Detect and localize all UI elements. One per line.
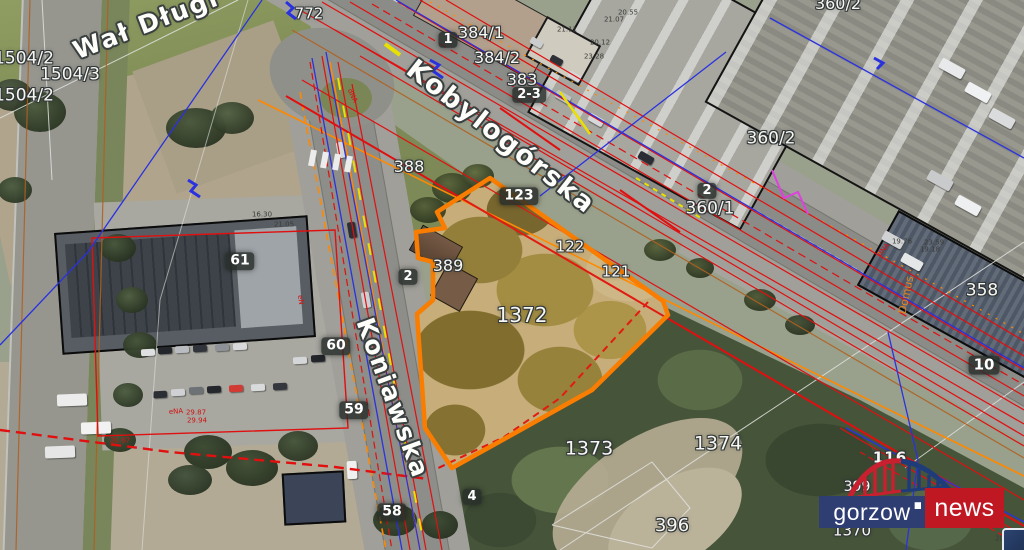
address-badge-58: 58 xyxy=(377,503,406,521)
survey-annotation: dNA xyxy=(877,242,892,258)
survey-annotation: 16.30 xyxy=(252,212,272,219)
address-badge-4: 4 xyxy=(462,489,481,505)
logo-separator-dot: · xyxy=(911,489,925,525)
parcel-label-1372: 1372 xyxy=(497,305,548,325)
survey-annotation: Domus xyxy=(897,275,916,315)
parcel-label-383: 383 xyxy=(507,72,538,88)
parcel-label-396: 396 xyxy=(655,517,689,535)
survey-annotation: 19.18 xyxy=(920,247,940,254)
parcel-label-122: 122 xyxy=(556,240,585,255)
parcel-label-358: 358 xyxy=(966,283,998,300)
survey-annotation: 23.28 xyxy=(584,54,604,61)
parcel-label-384-1: 384/1 xyxy=(458,25,504,41)
survey-annotation: eN xyxy=(296,295,305,306)
logo-news-text: news xyxy=(934,494,994,523)
parcel-label-389: 389 xyxy=(433,258,464,274)
parcel-label-772: 772 xyxy=(295,7,324,22)
address-badge-123: 123 xyxy=(499,187,538,205)
survey-annotation: 29.87 xyxy=(186,410,206,417)
survey-annotation: 21.11 xyxy=(557,27,577,34)
logo-gorzow-box: gorzow xyxy=(819,496,925,528)
parcel-label-1504-3: 1504/3 xyxy=(40,67,100,84)
parcel-label-1504-2: 1504/2 xyxy=(0,88,54,105)
parcel-label-388: 388 xyxy=(394,159,425,175)
parcel-label-360-2: 360/2 xyxy=(815,0,861,12)
street-label-wa-d-ugi: Wał Długi xyxy=(70,0,223,63)
address-badge-61: 61 xyxy=(225,252,254,270)
parcel-label-384-2: 384/2 xyxy=(474,50,520,66)
survey-annotation: 19.76 xyxy=(892,239,912,246)
parcel-label-360-1: 360/1 xyxy=(686,201,735,218)
survey-annotation: 20.87 xyxy=(110,438,130,445)
address-badge-2-3: 2-3 xyxy=(512,87,546,103)
parcel-label-1373: 1373 xyxy=(565,440,613,459)
street-label-koniawska: Koniawska xyxy=(352,314,433,481)
survey-annotation: 20.12 xyxy=(590,40,610,47)
aerial-cadastral-map[interactable]: Wał DługiKobylogórskaKoniawska1504/21504… xyxy=(0,0,1024,550)
survey-annotation: 21.05 xyxy=(274,222,294,229)
parcel-label-121: 121 xyxy=(602,265,631,280)
corner-inset-thumbnail xyxy=(1002,528,1024,550)
survey-annotation: eNA xyxy=(169,408,184,416)
parcel-label-1374: 1374 xyxy=(694,435,742,454)
address-badge-60: 60 xyxy=(321,337,350,355)
survey-annotation: 21.07 xyxy=(604,17,624,24)
survey-annotation: dNA xyxy=(346,88,359,104)
address-badge-2: 2 xyxy=(697,183,716,199)
logo-gorzow-text: gorzow xyxy=(833,499,910,526)
address-badge-1: 1 xyxy=(438,32,457,48)
parcel-label-360-2: 360/2 xyxy=(747,131,796,148)
address-badge-2: 2 xyxy=(398,269,417,285)
logo-news-box: news xyxy=(925,488,1004,528)
survey-annotation: 29.94 xyxy=(187,418,207,425)
address-badge-59: 59 xyxy=(339,401,368,419)
address-badge-10: 10 xyxy=(969,356,1000,375)
